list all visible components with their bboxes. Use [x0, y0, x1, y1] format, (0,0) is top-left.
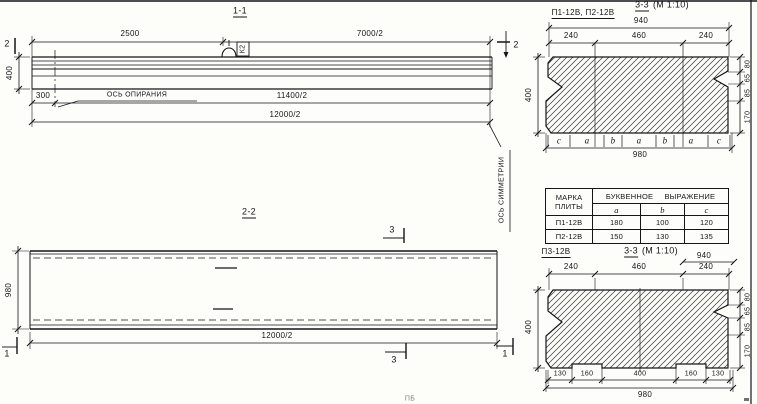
- table-cell-a-row1: 150: [593, 230, 641, 244]
- s33top-dim-170: 170: [745, 111, 752, 124]
- s33bot-dim-400-b: 400: [634, 371, 647, 378]
- s33top-title: 3-3(М 1:10): [635, 1, 689, 12]
- s33bot-dim-240-left: 240: [564, 263, 578, 271]
- table-cell-c-row1: 135: [685, 230, 729, 244]
- s33bot-dim-460: 460: [632, 263, 646, 271]
- cut-mark-2-left: 2: [4, 40, 9, 49]
- section-2-2-lines: [2, 124, 513, 359]
- section-1-1-title: 1-1: [233, 7, 247, 16]
- dim-400-label-s11: 400: [6, 66, 14, 80]
- s33bot-dim-240-right: 240: [699, 263, 713, 271]
- dim-12000-label-s22: 12000/2: [261, 332, 292, 340]
- bearing-axis-note: ОСЬ ОПИРАНИЯ: [107, 92, 167, 99]
- table-cell-b-row0: 100: [641, 216, 685, 230]
- s33top-dim-980: 980: [633, 151, 647, 159]
- section-1-1-lines: [14, 31, 510, 127]
- section-2-2-title: 2-2: [242, 208, 256, 217]
- s33top-dim-65: 65: [745, 74, 752, 82]
- table-subheader-c: c: [685, 204, 729, 216]
- dim-12000-label-s11: 12000/2: [269, 111, 300, 119]
- table-subheader-b: b: [641, 204, 685, 216]
- section-3-3-top-lines: [533, 22, 745, 153]
- dim-300-label: 300: [36, 92, 50, 100]
- cut-mark-3-top: 3: [389, 226, 394, 235]
- drawing-sheet: 1-1 2500 7000/2 2 2 400 К2 300 ОСЬ ОПИРА…: [0, 0, 757, 404]
- cut-mark-1-left: 1: [4, 350, 9, 359]
- cut-mark-1-right: 1: [502, 350, 507, 359]
- table-cell-mark-row1: П2-12В: [546, 230, 593, 244]
- s33top-dim-80: 80: [745, 60, 752, 68]
- table-row: П2-12В 150 130 135: [546, 230, 729, 244]
- s33bot-dim-940: 940: [697, 252, 711, 260]
- symmetry-axis-note: ОСЬ СИММЕТРИИ: [499, 157, 506, 223]
- table-cell-a-row0: 180: [593, 216, 641, 230]
- s33bot-dim-160-1: 160: [581, 371, 594, 378]
- s33bot-plate-mark: П3-12В: [542, 248, 571, 256]
- s33bot-dim-130-1: 130: [554, 371, 567, 378]
- table-cell-mark-row0: П1-12В: [546, 216, 593, 230]
- s33top-dim-400: 400: [525, 88, 533, 102]
- letter-c-2: c: [717, 137, 721, 146]
- table-cell-c-row0: 120: [685, 216, 729, 230]
- table-header-expression: БУКВЕННОЕ ВЫРАЖЕНИЕ: [593, 189, 729, 204]
- letter-a-1: a: [585, 137, 590, 146]
- letter-values-table: МАРКАПЛИТЫ БУКВЕННОЕ ВЫРАЖЕНИЕ a b c П1-…: [545, 188, 729, 244]
- s33top-dim-460: 460: [632, 32, 646, 40]
- cross-section-hatched-top: [546, 57, 728, 133]
- letter-a-2: a: [637, 137, 642, 146]
- dim-7000-label: 7000/2: [357, 30, 383, 38]
- s33top-dim-240-left: 240: [564, 32, 578, 40]
- s33top-dim-240-right: 240: [699, 32, 713, 40]
- lifting-loop-mark: К2: [240, 45, 247, 54]
- cross-section-hatched-bottom: [546, 290, 728, 368]
- table-row: П1-12В 180 100 120: [546, 216, 729, 230]
- s33bot-dim-80: 80: [745, 293, 752, 301]
- s33bot-dim-400: 400: [525, 320, 533, 334]
- table-subheader-a: a: [593, 204, 641, 216]
- dim-980-label-s22: 980: [5, 283, 13, 297]
- letter-b-2: b: [663, 137, 668, 146]
- s33bot-dim-65: 65: [745, 307, 752, 315]
- s33bot-dim-160-2: 160: [685, 371, 698, 378]
- dim-2500-label: 2500: [121, 30, 140, 38]
- table-cell-b-row1: 130: [641, 230, 685, 244]
- s33top-dim-940: 940: [634, 17, 648, 25]
- footer-mark: ПБ: [405, 396, 415, 403]
- letter-b-1: b: [611, 137, 616, 146]
- cut-mark-3-bottom: 3: [391, 356, 396, 365]
- s33top-plate-marks: П1-12В, П2-12В: [552, 9, 615, 17]
- letter-c-1: c: [557, 137, 561, 146]
- s33bot-dim-980: 980: [638, 391, 652, 399]
- s33top-dim-85: 85: [745, 89, 752, 97]
- table-header-mark: МАРКАПЛИТЫ: [546, 189, 593, 216]
- dim-11400-label: 11400/2: [277, 92, 307, 100]
- s33bot-dim-170: 170: [745, 345, 752, 358]
- s33bot-dim-130-2: 130: [712, 371, 725, 378]
- s33bot-title: 3-3(М 1:10): [624, 247, 678, 258]
- s33bot-dim-85: 85: [745, 323, 752, 331]
- letter-a-3: a: [689, 137, 694, 146]
- cut-mark-2-right: 2: [513, 41, 518, 50]
